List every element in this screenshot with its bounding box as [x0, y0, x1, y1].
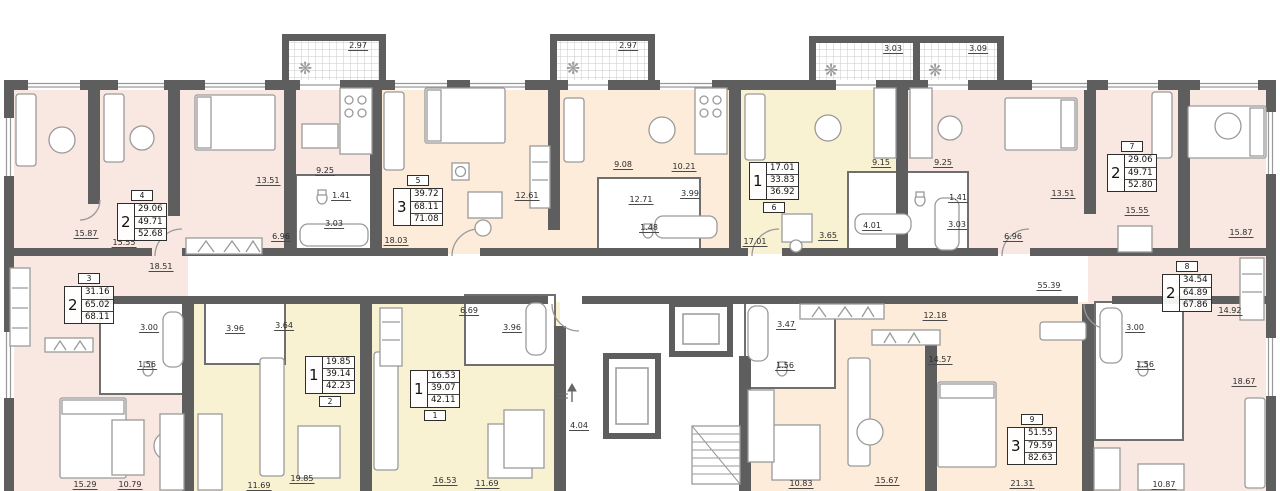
apartment-area-box: 3 51.5579.5982.63	[1007, 427, 1057, 465]
balconies: ❋❋❋❋	[282, 34, 1004, 86]
apartment-room-count: 3	[394, 189, 411, 225]
apartment-area-values: 16.5339.0742.11	[428, 371, 459, 407]
apartment-room-count: 1	[411, 371, 428, 407]
apartment-number-badge: 2	[319, 396, 342, 407]
apartment-area-values: 29.0649.7152.80	[1125, 155, 1156, 191]
dimension-label: 19.85	[290, 474, 315, 484]
dimension-label: 13.51	[1051, 189, 1076, 199]
apartment-area-value: 49.71	[1125, 167, 1156, 179]
dimension-label: 12.61	[515, 191, 540, 201]
dimension-label: 9.25	[315, 166, 335, 176]
apartment-room-count: 1	[306, 357, 323, 393]
apartment-area-value: 31.16	[82, 287, 113, 298]
dimension-label: 2.97	[618, 41, 638, 51]
apartment-area-value: 49.71	[135, 216, 166, 228]
apartment-area-values: 19.8539.1442.23	[323, 357, 354, 393]
dimension-label: 11.69	[475, 479, 500, 489]
dimension-label: 3.99	[680, 189, 700, 199]
apartment-area-box: 3 39.7268.1171.08	[393, 188, 443, 226]
apartment-area-values: 17.0133.8336.92	[767, 163, 798, 199]
apartment-area-box: 2 29.0649.7152.80	[1107, 154, 1157, 192]
dimension-label: 1.41	[948, 193, 968, 203]
dimension-label: 15.87	[1229, 228, 1254, 238]
washer-icon	[452, 163, 469, 180]
svg-text:❋: ❋	[824, 61, 838, 81]
dimension-label: 18.51	[149, 262, 174, 272]
dimension-label: 6.96	[271, 232, 291, 242]
dimension-label: 10.87	[1152, 480, 1177, 490]
dimension-label: 10.21	[672, 162, 697, 172]
dimension-label: 18.03	[384, 236, 409, 246]
dimension-label: 1.56	[1135, 360, 1155, 370]
apartment-area-value: 52.80	[1125, 179, 1156, 191]
dimension-label: 3.65	[818, 231, 838, 241]
floor-plan: ❋❋❋❋	[0, 0, 1280, 491]
apartment-area-value: 39.72	[411, 189, 442, 200]
apartment-number-badge: 4	[131, 190, 154, 201]
apartment-room-count: 2	[65, 287, 82, 323]
apartment-card: 1 1 16.5339.0742.11	[410, 370, 460, 421]
apartment-card: 9 3 51.5579.5982.63	[1007, 414, 1057, 465]
apartment-area-box: 2 29.0649.7152.68	[117, 203, 167, 241]
svg-text:❋: ❋	[298, 59, 312, 79]
apartment-area-value: 51.55	[1025, 428, 1056, 439]
apartment-number-badge: 9	[1021, 414, 1044, 425]
apartment-area-box: 2 34.5464.8967.86	[1162, 274, 1212, 312]
apartment-number-badge: 5	[407, 175, 430, 186]
apartment-area-value: 19.85	[323, 357, 354, 368]
apartment-area-values: 51.5579.5982.63	[1025, 428, 1056, 464]
apartment-area-value: 39.14	[323, 368, 354, 380]
dimension-label: 15.29	[73, 480, 98, 490]
apartment-area-value: 29.06	[1125, 155, 1156, 166]
dimension-label: 4.04	[569, 421, 589, 431]
dimension-label: 13.51	[256, 176, 281, 186]
dimension-label: 12.71	[629, 195, 654, 205]
apartment-area-value: 82.63	[1025, 452, 1056, 464]
apartment-room-count: 2	[1163, 275, 1180, 311]
apartment-number-badge: 1	[424, 410, 447, 421]
apartment-area-value: 65.02	[82, 299, 113, 311]
apartment-area-value: 16.53	[428, 371, 459, 382]
apartment-area-box: 1 19.8539.1442.23	[305, 356, 355, 394]
apartment-area-value: 52.68	[135, 228, 166, 240]
dimension-label: 6.69	[459, 306, 479, 316]
dimension-label: 17.01	[743, 237, 768, 247]
apartment-room-count: 2	[118, 204, 135, 240]
dimension-label: 14.92	[1218, 306, 1243, 316]
apartment-area-value: 17.01	[767, 163, 798, 174]
dimension-label: 15.67	[875, 476, 900, 486]
apartment-area-box: 1 16.5339.0742.11	[410, 370, 460, 408]
apartment-room-count: 1	[750, 163, 767, 199]
dimension-label: 3.09	[968, 44, 988, 54]
dimension-label: 1.41	[331, 191, 351, 201]
apartment-number-badge: 8	[1176, 261, 1199, 272]
apartment-area-values: 29.0649.7152.68	[135, 204, 166, 240]
dimension-label: 16.53	[433, 476, 458, 486]
dimension-label: 6.96	[1003, 232, 1023, 242]
stairs-icon	[692, 426, 740, 484]
dimension-label: 11.69	[247, 481, 272, 491]
apartment-area-value: 64.89	[1180, 287, 1211, 299]
dimension-label: 10.79	[118, 480, 143, 490]
svg-text:❋: ❋	[566, 59, 580, 79]
apartment-card: 7 2 29.0649.7152.80	[1107, 141, 1157, 192]
apartment-area-values: 39.7268.1171.08	[411, 189, 442, 225]
apartment-area-box: 1 17.0133.8336.92	[749, 162, 799, 200]
apartment-number-badge: 7	[1121, 141, 1144, 152]
apartment-area-value: 39.07	[428, 382, 459, 394]
apartment-area-value: 71.08	[411, 213, 442, 225]
dimension-label: 3.00	[139, 323, 159, 333]
dimension-label: 21.31	[1010, 479, 1035, 489]
dimension-label: 14.57	[928, 355, 953, 365]
dimension-label: 1.48	[639, 223, 659, 233]
apartment-card: 5 3 39.7268.1171.08	[393, 175, 443, 226]
dimension-label: 3.00	[1125, 323, 1145, 333]
dimension-label: 3.03	[947, 220, 967, 230]
apartment-card: 6 1 17.0133.8336.92	[749, 162, 799, 213]
apartment-area-value: 42.11	[428, 394, 459, 406]
svg-text:❋: ❋	[928, 61, 942, 81]
dimension-label: 12.18	[923, 311, 948, 321]
apartment-area-value: 68.11	[82, 311, 113, 323]
apartment-number-badge: 6	[763, 202, 786, 213]
apartment-room-count: 3	[1008, 428, 1025, 464]
apartment-area-value: 36.92	[767, 186, 798, 198]
apartment-area-box: 2 31.1665.0268.11	[64, 286, 114, 324]
apartment-number-badge: 3	[78, 273, 101, 284]
dimension-label: 10.83	[789, 479, 814, 489]
dimension-label: 3.96	[502, 323, 522, 333]
dimension-label: 3.47	[776, 320, 796, 330]
apartment-area-value: 68.11	[411, 201, 442, 213]
floor-plan-drawing: ❋❋❋❋	[0, 0, 1280, 491]
apartment-area-value: 67.86	[1180, 299, 1211, 311]
dimension-label: 15.55	[1125, 206, 1150, 216]
dimension-label: 1.56	[775, 361, 795, 371]
apartment-area-values: 31.1665.0268.11	[82, 287, 113, 323]
apartment-card: 2 1 19.8539.1442.23	[305, 356, 355, 407]
apartment-area-value: 34.54	[1180, 275, 1211, 286]
apartment-area-value: 33.83	[767, 174, 798, 186]
dimension-label: 4.01	[862, 221, 882, 231]
dimension-label: 9.15	[871, 158, 891, 168]
elevator-icon	[606, 304, 730, 436]
apartment-card: 8 2 34.5464.8967.86	[1162, 261, 1212, 312]
dimension-label: 3.03	[324, 219, 344, 229]
dimension-label: 18.67	[1232, 377, 1257, 387]
apartment-area-value: 42.23	[323, 380, 354, 392]
apartment-area-values: 34.5464.8967.86	[1180, 275, 1211, 311]
apartment-area-value: 79.59	[1025, 440, 1056, 452]
dimension-label: 3.64	[274, 321, 294, 331]
dimension-label: 55.39	[1037, 281, 1062, 291]
dimension-label: 2.97	[348, 41, 368, 51]
dimension-label: 3.03	[883, 44, 903, 54]
dimension-label: 9.25	[933, 158, 953, 168]
apartment-card: 4 2 29.0649.7152.68	[117, 190, 167, 241]
dimension-label: 15.87	[74, 229, 99, 239]
apartment-card: 3 2 31.1665.0268.11	[64, 273, 114, 324]
apartment-area-value: 29.06	[135, 204, 166, 215]
dimension-label: 1.56	[137, 360, 157, 370]
dimension-label: 3.96	[225, 324, 245, 334]
apartment-room-count: 2	[1108, 155, 1125, 191]
dimension-label: 9.08	[613, 160, 633, 170]
